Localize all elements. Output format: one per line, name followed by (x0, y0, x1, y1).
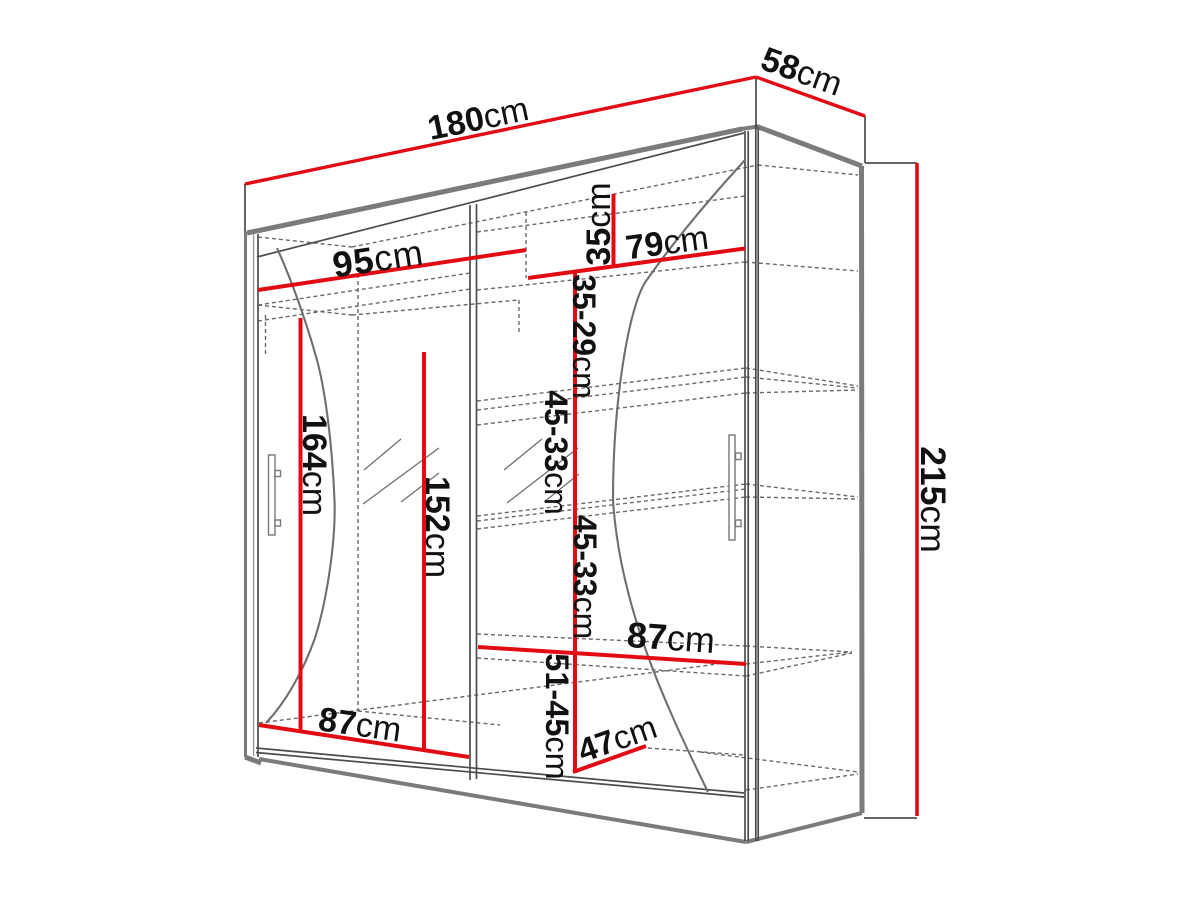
svg-text:45-33cm: 45-33cm (538, 390, 574, 515)
svg-text:87cm: 87cm (626, 614, 717, 661)
svg-text:164cm: 164cm (295, 414, 333, 516)
svg-text:35cm: 35cm (580, 182, 618, 265)
svg-text:35-29cm: 35-29cm (566, 274, 602, 399)
svg-text:51-45cm: 51-45cm (539, 653, 575, 779)
svg-text:215cm: 215cm (913, 446, 953, 553)
svg-text:45-33cm: 45-33cm (567, 515, 603, 640)
svg-text:152cm: 152cm (418, 476, 456, 578)
